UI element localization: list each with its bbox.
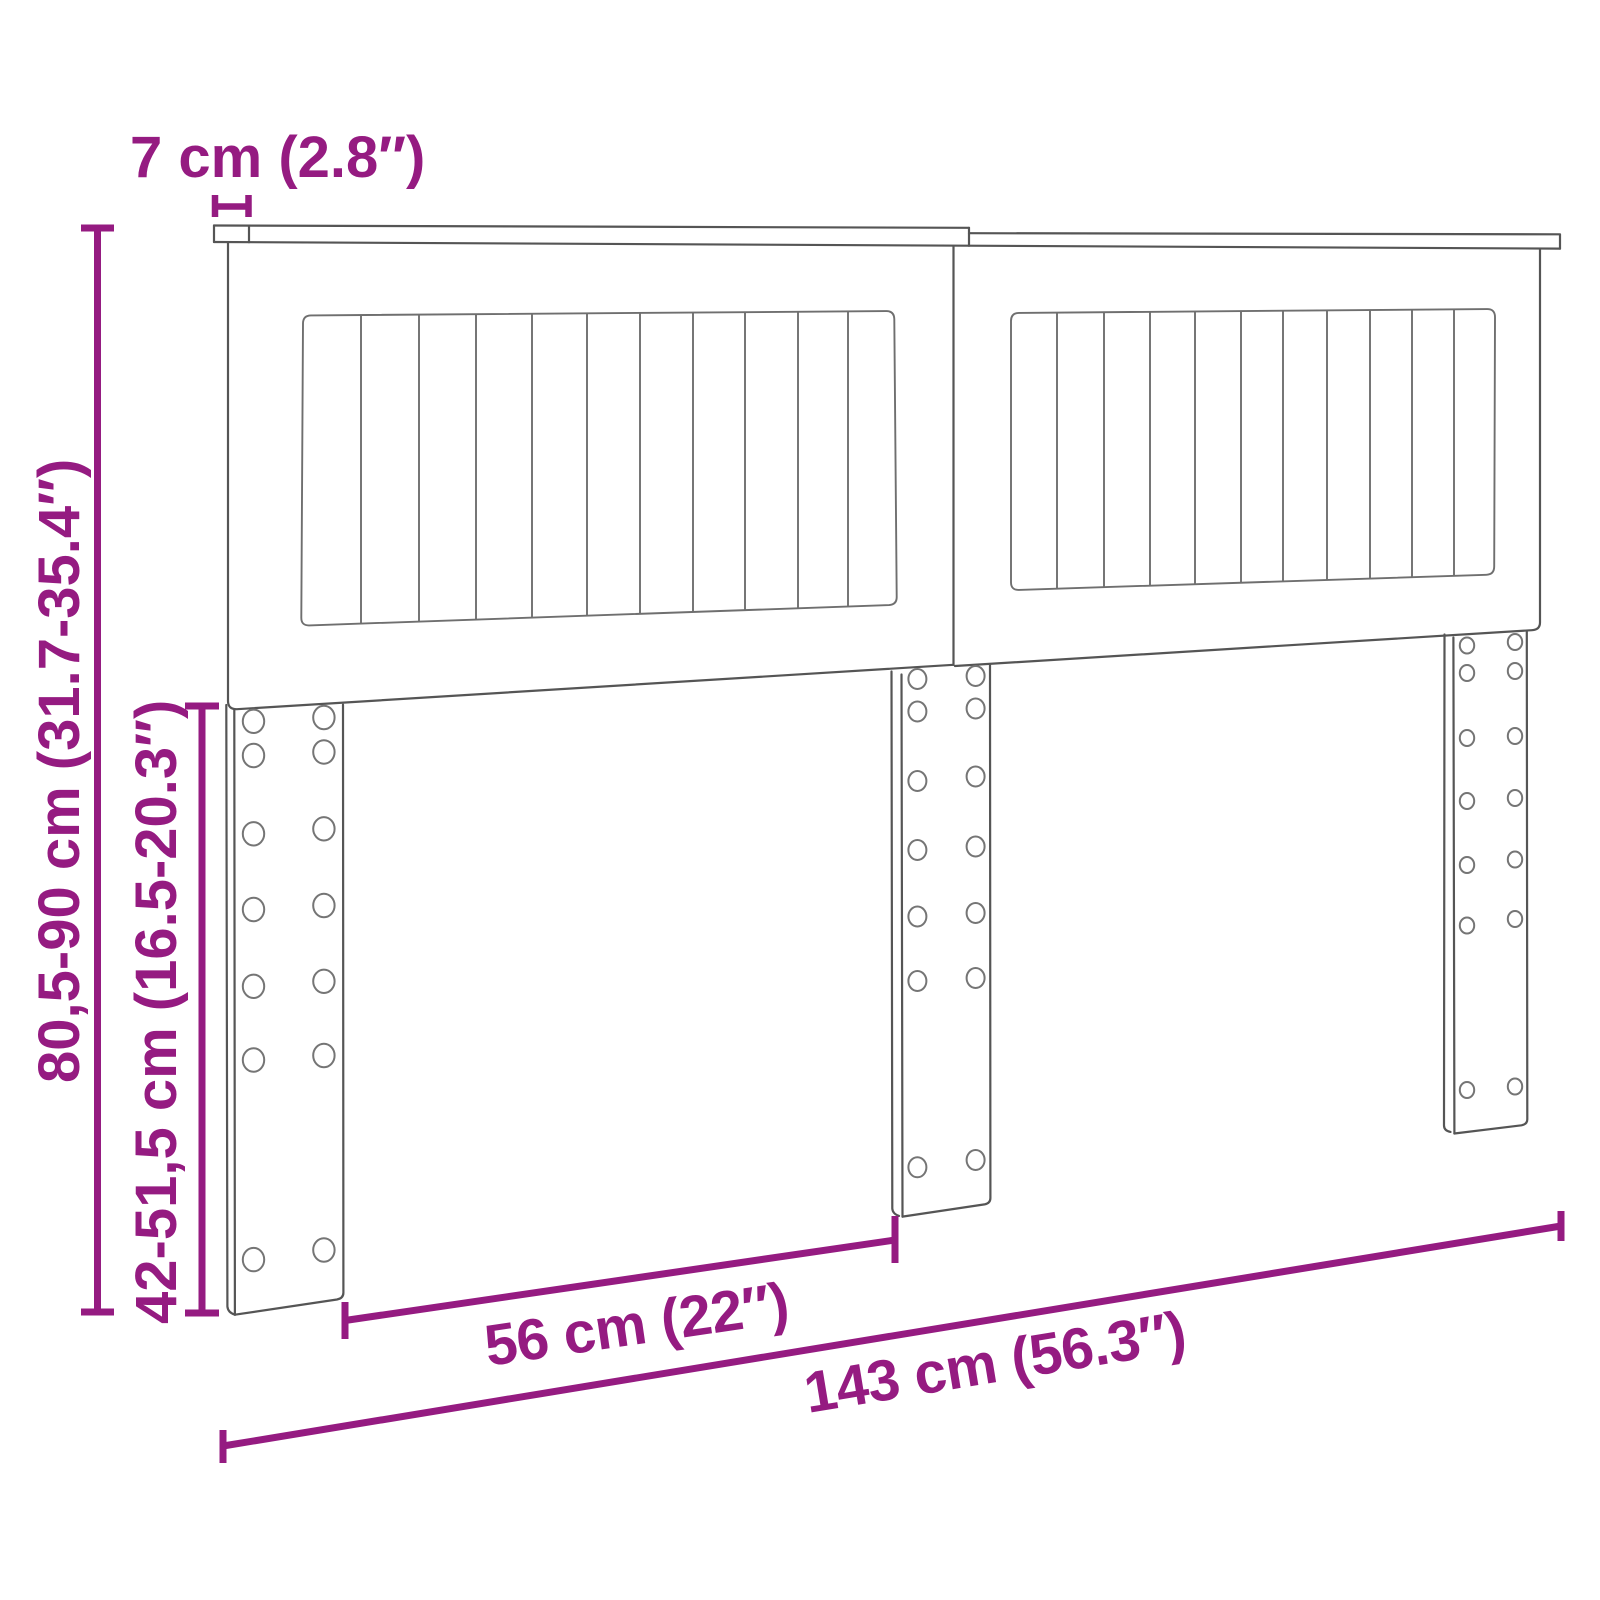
svg-text:42-51,5 cm (16.5-20.3″): 42-51,5 cm (16.5-20.3″) xyxy=(124,700,189,1324)
svg-text:7 cm (2.8″): 7 cm (2.8″) xyxy=(130,125,425,190)
svg-text:80,5-90 cm (31.7-35.4″): 80,5-90 cm (31.7-35.4″) xyxy=(27,459,92,1083)
